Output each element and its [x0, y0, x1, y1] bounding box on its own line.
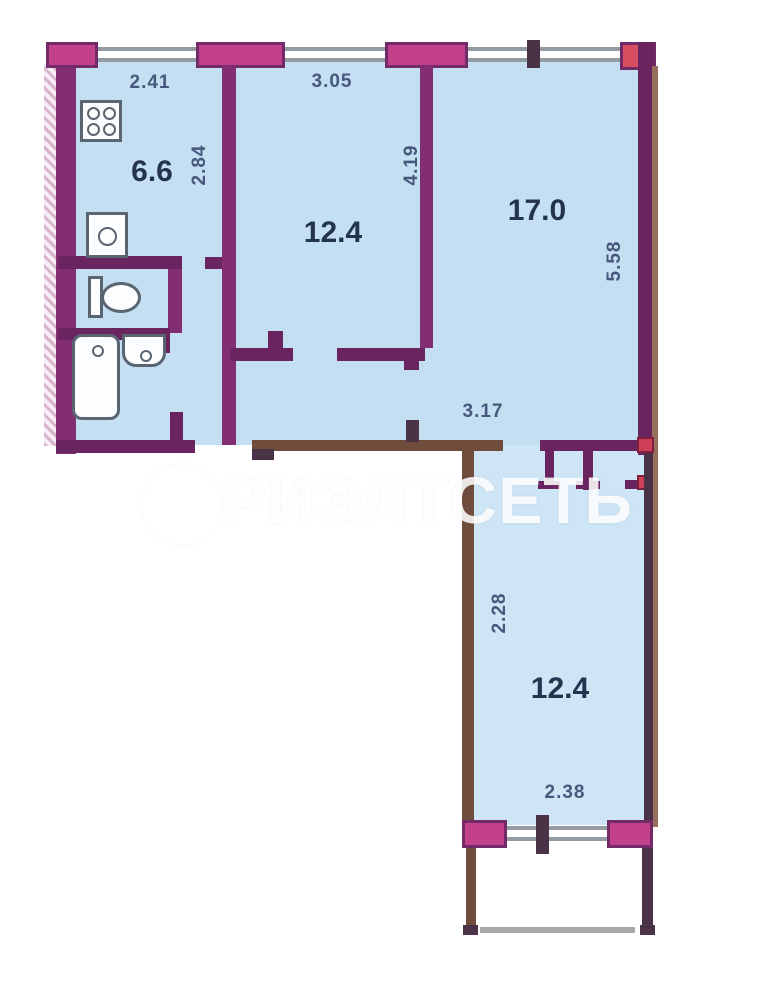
closet-wall-end-cap: [637, 437, 654, 453]
hall-wall-jamb: [406, 420, 419, 442]
kitchen-window: [98, 58, 196, 62]
watermark-logo-letter: Р: [167, 476, 198, 530]
toilet-icon: [101, 282, 141, 313]
bedroom-top-dimension: 3.05: [292, 71, 372, 93]
bathtub-icon: [72, 334, 120, 420]
bedroom-door-jamb: [268, 331, 283, 348]
balcony-wall-cap: [463, 925, 478, 935]
lower-room-window: [507, 837, 607, 841]
kitchen-bedroom-divider-wall: [222, 66, 236, 445]
living-area-label: 17.0: [497, 194, 577, 228]
hall-wall-notch: [252, 449, 274, 460]
washbasin-icon: [122, 334, 166, 367]
balcony-wall-cap: [640, 925, 655, 935]
kitchen-side-dimension: 2.84: [189, 125, 211, 205]
balcony-right-wall: [642, 848, 653, 932]
wc-right-wall: [168, 269, 182, 333]
living-window-mullion: [527, 40, 540, 68]
bedroom-area-label: 12.4: [293, 216, 373, 250]
lower-window-pier-right: [607, 820, 653, 848]
balcony-left-wall: [466, 848, 476, 932]
entrance-door-jamb: [170, 412, 183, 442]
bedroom-door-jamb: [404, 361, 419, 370]
kitchen-sink-icon: [86, 212, 128, 258]
living-side-dimension: 5.58: [604, 221, 626, 301]
kitchen-top-dimension: 2.41: [110, 72, 190, 94]
kitchen-area-label: 6.6: [112, 155, 192, 189]
balcony-rail: [480, 927, 635, 933]
living-window: [468, 58, 620, 62]
lower-window-mullion: [536, 815, 549, 854]
bedroom-bottom-wall-right: [337, 348, 425, 361]
kitchen-window: [98, 47, 196, 51]
watermark-logo-icon: Р: [142, 465, 222, 545]
lower-room-bottom-dimension: 2.38: [525, 782, 605, 804]
upper-rooms-fill: [58, 60, 650, 445]
hall-width-dimension: 3.17: [443, 401, 523, 423]
lower-room-area-label: 12.4: [520, 672, 600, 706]
lower-window-pier-left: [462, 820, 507, 848]
bedroom-bottom-wall-left: [230, 348, 293, 361]
bedroom-side-dimension: 4.19: [401, 125, 423, 205]
lower-room-window: [507, 826, 607, 830]
top-pier-corner-left: [46, 42, 98, 68]
stove-icon: [80, 100, 122, 142]
bedroom-window: [285, 58, 385, 62]
bedroom-window: [285, 47, 385, 51]
top-pier-bedroom-living: [385, 42, 468, 68]
floor-plan: 2.41 3.05 2.84 4.19 5.58 3.17 2.28 2.38 …: [0, 0, 774, 1000]
right-outer-wall-shade: [652, 66, 658, 455]
lower-room-side-dimension: 2.28: [489, 573, 511, 653]
closet-top-wall: [540, 440, 650, 451]
bedroom-living-divider-wall: [420, 66, 433, 348]
kitchen-door-jamb: [205, 257, 222, 269]
top-pier-kitchen-bedroom: [196, 42, 285, 68]
living-window: [468, 47, 620, 51]
lower-room-right-wall-shade: [653, 453, 658, 827]
watermark-text: РИЭЛТСЕТЬ: [222, 462, 633, 538]
